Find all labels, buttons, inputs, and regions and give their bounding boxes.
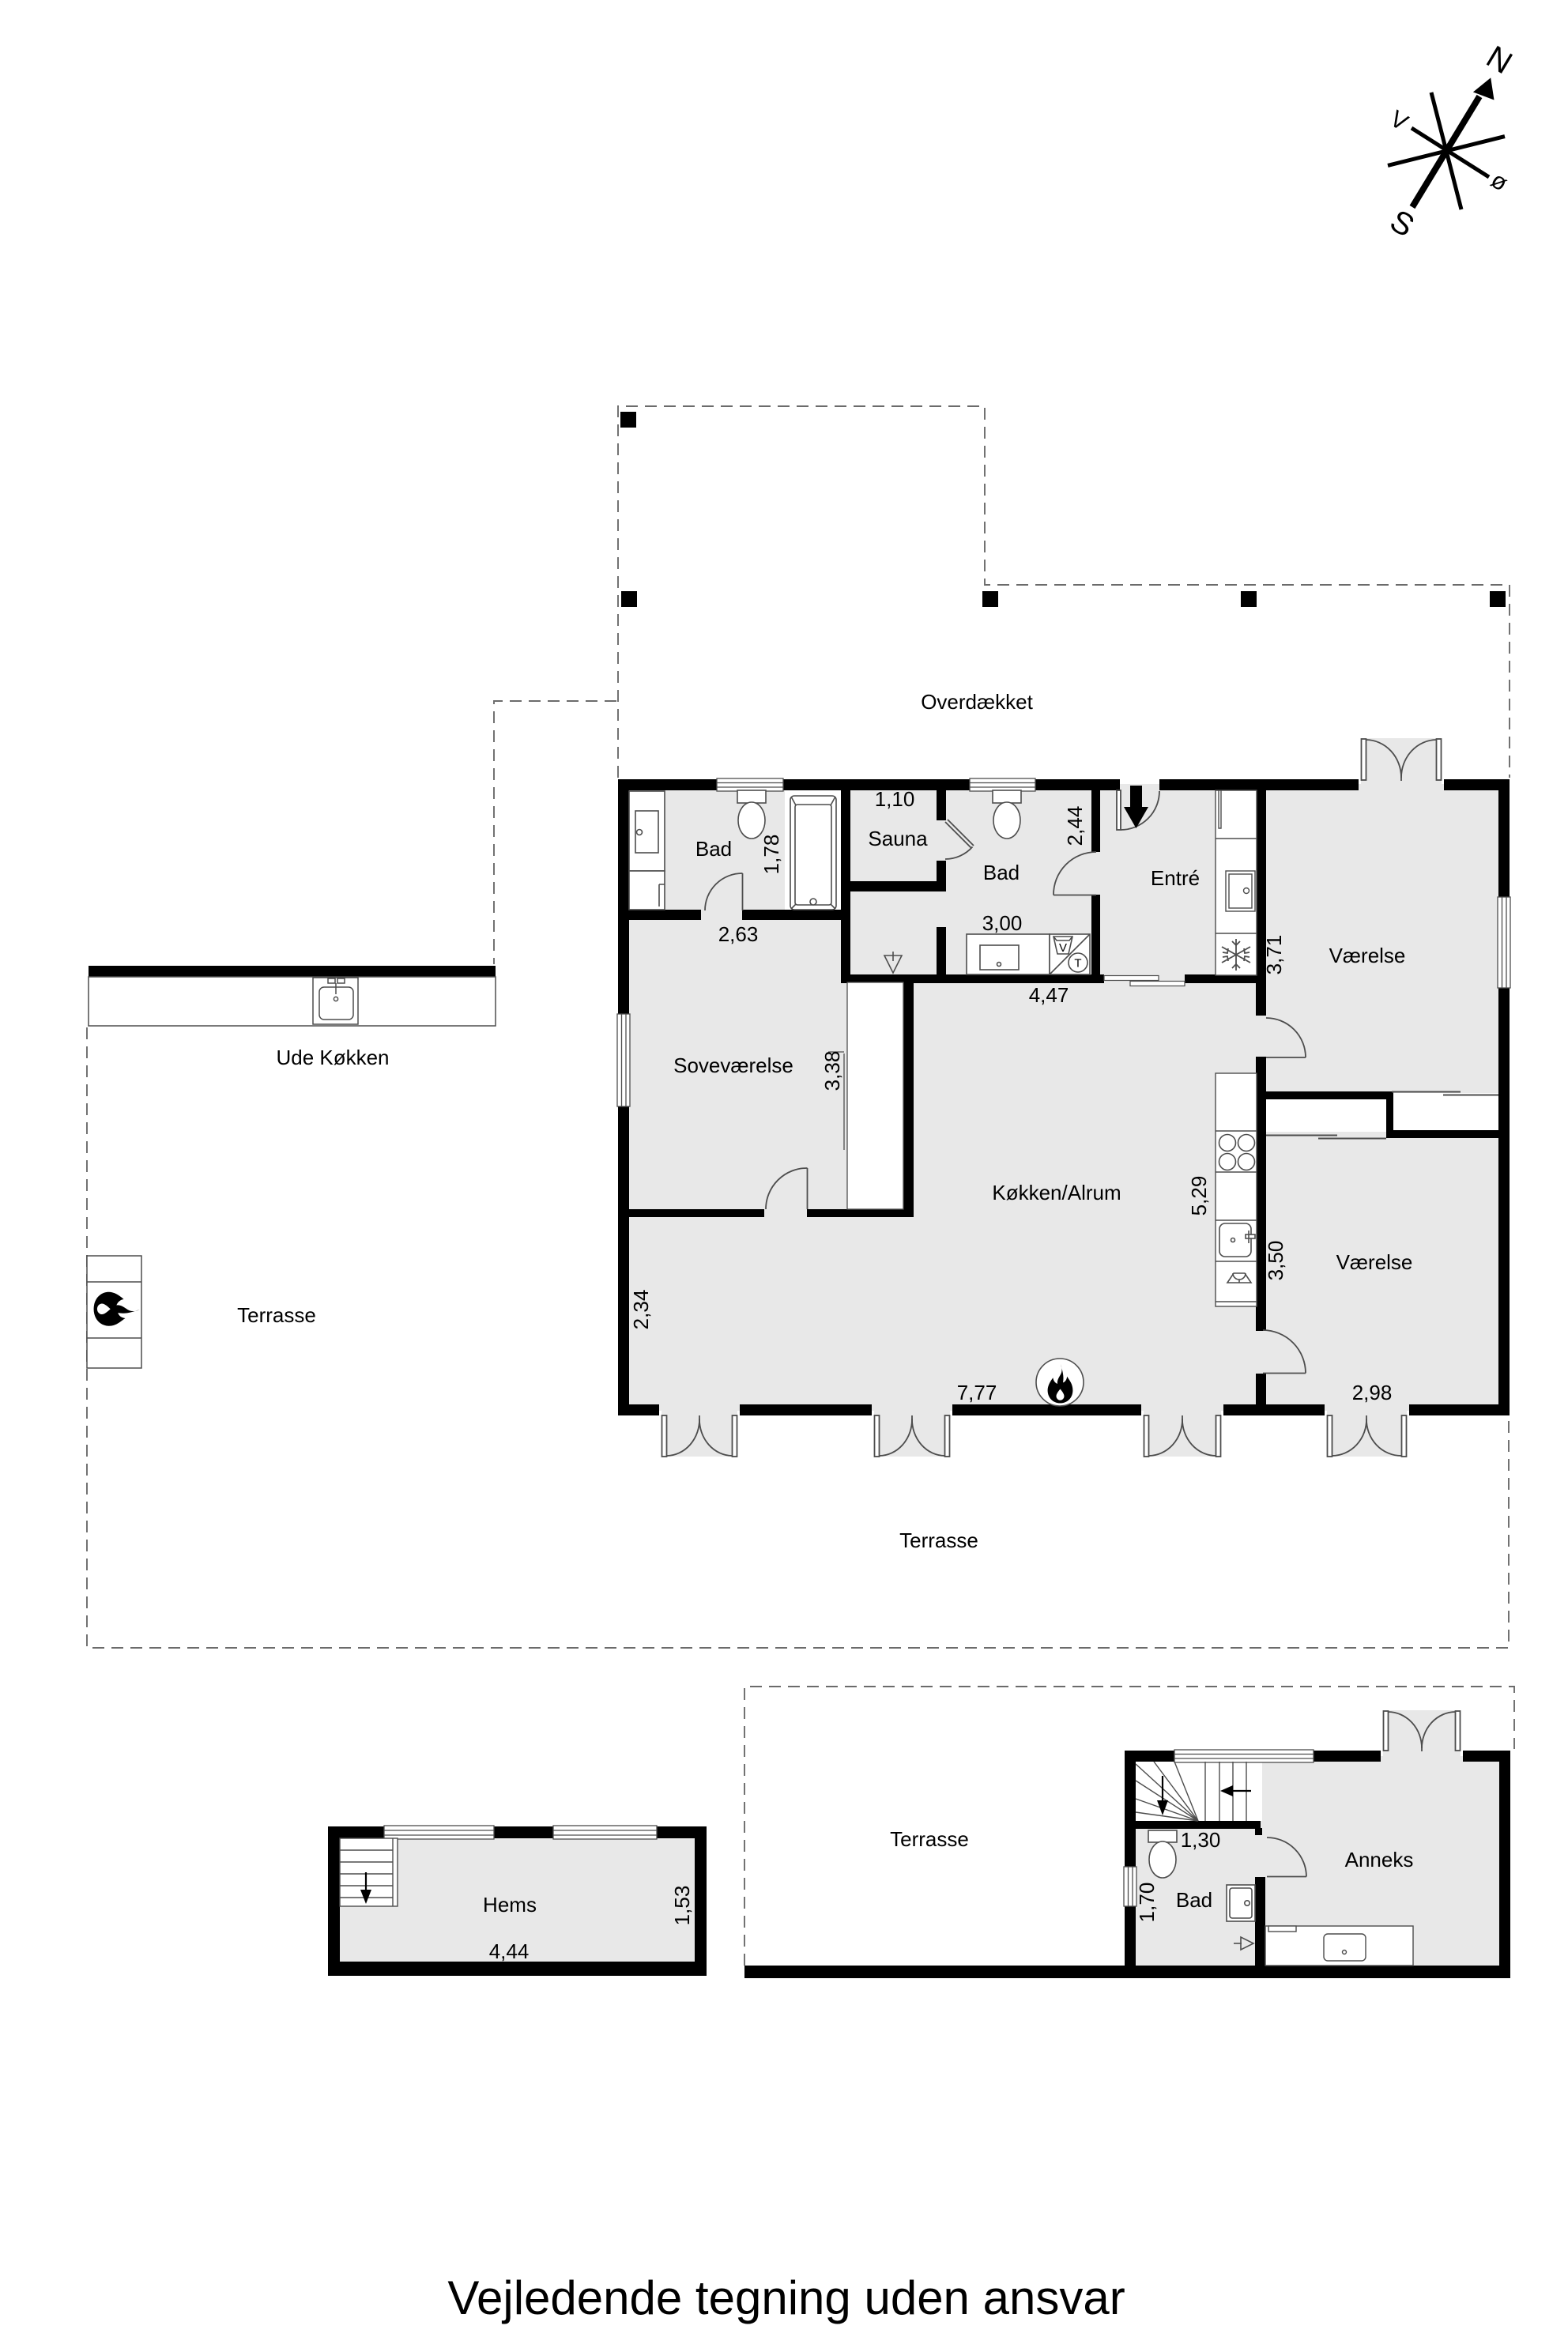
svg-text:1,10: 1,10: [875, 787, 915, 811]
svg-text:Værelse: Værelse: [1336, 1250, 1413, 1274]
svg-text:3,00: 3,00: [982, 911, 1023, 935]
svg-text:Terrasse: Terrasse: [899, 1528, 978, 1552]
svg-text:2,63: 2,63: [718, 922, 759, 946]
svg-text:V: V: [1059, 941, 1067, 955]
svg-text:5,29: 5,29: [1187, 1176, 1211, 1216]
svg-text:4,47: 4,47: [1029, 983, 1069, 1007]
svg-text:1,30: 1,30: [1181, 1828, 1221, 1852]
svg-text:Bad: Bad: [695, 837, 732, 861]
svg-text:1,70: 1,70: [1135, 1883, 1159, 1923]
svg-text:4,44: 4,44: [489, 1939, 530, 1963]
svg-text:T: T: [1074, 957, 1081, 971]
svg-text:2,98: 2,98: [1352, 1381, 1393, 1404]
svg-text:1,78: 1,78: [759, 835, 783, 875]
svg-text:3,50: 3,50: [1264, 1241, 1287, 1281]
svg-text:Ude Køkken: Ude Køkken: [276, 1046, 389, 1069]
svg-text:2,34: 2,34: [629, 1290, 653, 1330]
svg-text:Entré: Entré: [1151, 866, 1200, 890]
svg-text:Terrasse: Terrasse: [237, 1303, 316, 1327]
svg-text:Værelse: Værelse: [1329, 944, 1406, 967]
svg-text:Soveværelse: Soveværelse: [673, 1053, 793, 1077]
svg-text:Terrasse: Terrasse: [890, 1827, 969, 1851]
svg-text:Køkken/Alrum: Køkken/Alrum: [992, 1181, 1121, 1204]
svg-text:Hems: Hems: [483, 1893, 537, 1917]
svg-text:1,53: 1,53: [670, 1886, 694, 1926]
svg-text:7,77: 7,77: [957, 1381, 997, 1404]
svg-text:Anneks: Anneks: [1345, 1848, 1414, 1871]
svg-text:2,44: 2,44: [1063, 806, 1087, 846]
svg-text:Bad: Bad: [1176, 1888, 1212, 1912]
svg-text:Overdækket: Overdækket: [921, 690, 1033, 714]
svg-text:Bad: Bad: [983, 861, 1020, 884]
svg-text:3,38: 3,38: [820, 1051, 844, 1091]
svg-text:Sauna: Sauna: [868, 827, 928, 850]
svg-text:3,71: 3,71: [1262, 935, 1286, 975]
svg-text:Vejledende tegning uden ansvar: Vejledende tegning uden ansvar: [447, 2271, 1125, 2324]
